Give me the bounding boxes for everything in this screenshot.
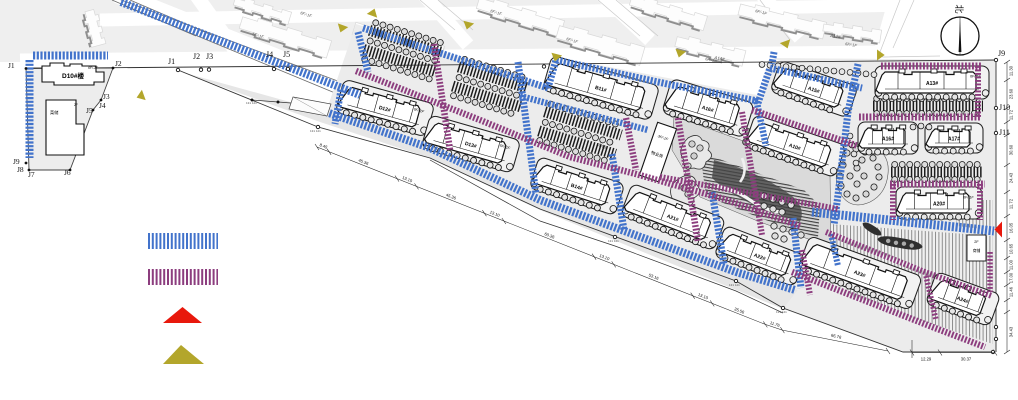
svg-text:24.43: 24.43 bbox=[1009, 172, 1014, 183]
svg-text:131 121: 131 121 bbox=[246, 101, 257, 105]
svg-text:12.29: 12.29 bbox=[921, 357, 932, 362]
svg-text:11.00: 11.00 bbox=[1009, 259, 1014, 270]
svg-text:J9: J9 bbox=[998, 49, 1005, 58]
svg-text:A13#: A13# bbox=[926, 81, 938, 87]
svg-text:2F: 2F bbox=[974, 240, 979, 244]
svg-text:34.43: 34.43 bbox=[1009, 326, 1014, 337]
svg-text:J5: J5 bbox=[86, 106, 93, 115]
svg-text:J5: J5 bbox=[283, 50, 290, 59]
svg-text:6F/-1F: 6F/-1F bbox=[88, 66, 99, 70]
svg-text:10.65: 10.65 bbox=[1009, 243, 1014, 254]
svg-text:J2: J2 bbox=[193, 52, 200, 61]
svg-text:6F/-1F: 6F/-1F bbox=[963, 196, 974, 200]
svg-text:131 121: 131 121 bbox=[729, 283, 740, 287]
svg-text:J3: J3 bbox=[103, 92, 110, 101]
svg-text:J3: J3 bbox=[206, 52, 213, 61]
svg-text:23.60: 23.60 bbox=[1009, 88, 1014, 99]
svg-text:J1: J1 bbox=[168, 57, 175, 66]
svg-text:30.60: 30.60 bbox=[1009, 144, 1014, 155]
svg-text:J7: J7 bbox=[28, 170, 35, 179]
svg-text:J6: J6 bbox=[64, 168, 71, 177]
svg-text:J8: J8 bbox=[17, 165, 24, 174]
svg-text:J4: J4 bbox=[99, 101, 106, 110]
svg-text:J9: J9 bbox=[13, 157, 20, 166]
svg-text:商铺: 商铺 bbox=[973, 248, 981, 253]
svg-text:11.46: 11.46 bbox=[1009, 286, 1014, 297]
svg-text:A17#: A17# bbox=[948, 137, 960, 143]
svg-text:131 121: 131 121 bbox=[310, 129, 321, 133]
svg-text:J11: J11 bbox=[999, 128, 1010, 137]
svg-text:A20#: A20# bbox=[933, 202, 945, 208]
svg-text:17.00: 17.00 bbox=[1009, 272, 1014, 283]
svg-text:A16#: A16# bbox=[882, 137, 894, 143]
svg-text:2F: 2F bbox=[74, 103, 78, 107]
svg-text:131 121: 131 121 bbox=[776, 310, 787, 314]
svg-text:J1: J1 bbox=[8, 61, 15, 70]
svg-text:J2: J2 bbox=[115, 59, 122, 68]
svg-text:16.05: 16.05 bbox=[1009, 222, 1014, 233]
svg-text:11.72: 11.72 bbox=[1009, 198, 1014, 209]
svg-text:11.30: 11.30 bbox=[1009, 65, 1014, 76]
svg-text:J4: J4 bbox=[266, 50, 273, 59]
svg-text:131 121: 131 121 bbox=[608, 239, 619, 243]
svg-text:D10#楼: D10#楼 bbox=[62, 71, 85, 80]
svg-text:11.72: 11.72 bbox=[1009, 109, 1014, 120]
svg-text:菜储: 菜储 bbox=[50, 109, 58, 116]
svg-text:北: 北 bbox=[954, 4, 964, 13]
svg-text:30.37: 30.37 bbox=[961, 357, 972, 362]
